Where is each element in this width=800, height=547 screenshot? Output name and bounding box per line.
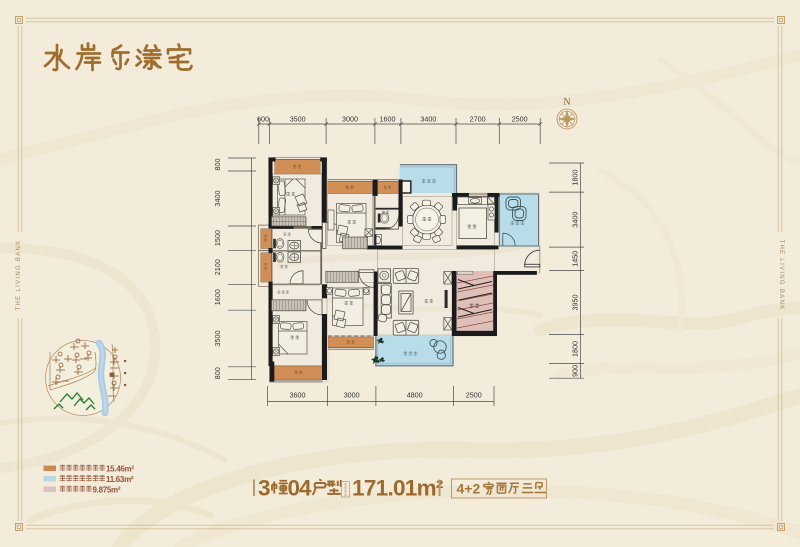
svg-text:1500: 1500 <box>213 230 222 246</box>
svg-text:3500: 3500 <box>213 331 222 347</box>
svg-text:171.01m²: 171.01m² <box>352 476 444 501</box>
svg-text:9.875m²: 9.875m² <box>93 486 121 495</box>
svg-text:3000: 3000 <box>342 115 358 124</box>
svg-text:3500: 3500 <box>290 115 306 124</box>
svg-text:1800: 1800 <box>571 170 580 186</box>
svg-text:3: 3 <box>258 476 271 501</box>
svg-text:1600: 1600 <box>380 115 396 124</box>
svg-text:2500: 2500 <box>512 115 528 124</box>
svg-text:1450: 1450 <box>571 251 580 267</box>
svg-text:04: 04 <box>288 476 313 501</box>
svg-text:1800: 1800 <box>571 341 580 357</box>
svg-text:N: N <box>563 97 570 108</box>
svg-text:600: 600 <box>257 115 269 124</box>
svg-text:3400: 3400 <box>571 212 580 228</box>
svg-text:3400: 3400 <box>420 115 436 124</box>
svg-text:2100: 2100 <box>213 259 222 275</box>
svg-text:11.63m²: 11.63m² <box>106 475 134 484</box>
svg-text:15.46m²: 15.46m² <box>106 465 134 474</box>
svg-text:900: 900 <box>571 365 580 377</box>
svg-text:3600: 3600 <box>290 391 306 400</box>
svg-text:4800: 4800 <box>407 391 423 400</box>
svg-text:3000: 3000 <box>344 391 360 400</box>
svg-text:3400: 3400 <box>213 191 222 207</box>
svg-text:2500: 2500 <box>466 391 482 400</box>
svg-text:4+2: 4+2 <box>457 480 481 496</box>
svg-text:800: 800 <box>213 159 222 171</box>
svg-text:3950: 3950 <box>571 295 580 311</box>
svg-text:1600: 1600 <box>213 289 222 305</box>
svg-text:800: 800 <box>213 367 222 379</box>
svg-text:2700: 2700 <box>470 115 486 124</box>
svg-text:THE LIVING BANK: THE LIVING BANK <box>778 240 784 311</box>
svg-text:THE LIVING BANK: THE LIVING BANK <box>16 240 22 311</box>
